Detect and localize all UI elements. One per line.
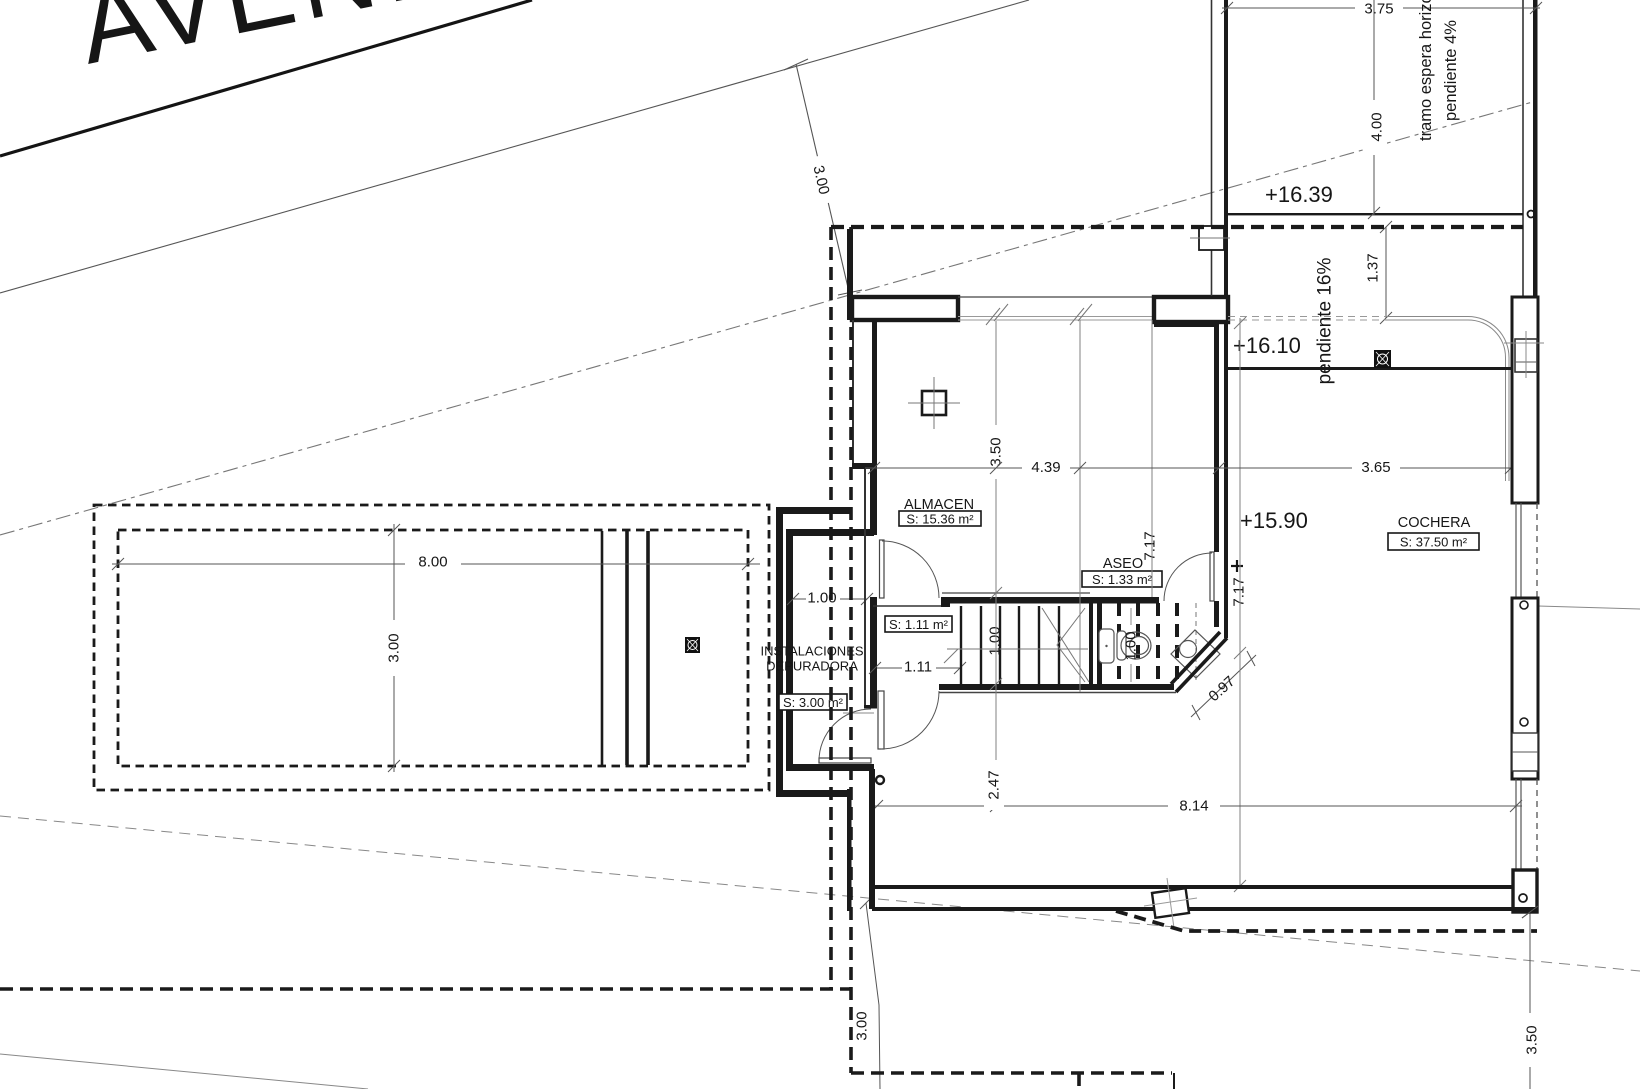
svg-text:S: 3.00 m²: S: 3.00 m² xyxy=(783,695,844,710)
svg-text:S: 1.11 m²: S: 1.11 m² xyxy=(889,617,949,632)
svg-text:7.17: 7.17 xyxy=(1231,577,1248,606)
svg-text:COCHERA: COCHERA xyxy=(1398,515,1471,531)
svg-text:4.39: 4.39 xyxy=(1031,459,1060,476)
svg-text:ASEO: ASEO xyxy=(1103,556,1143,572)
svg-text:1.11: 1.11 xyxy=(904,659,932,676)
svg-text:3.65: 3.65 xyxy=(1361,459,1390,476)
svg-text:DEPURADORA: DEPURADORA xyxy=(766,659,858,674)
svg-text:1.37: 1.37 xyxy=(1365,253,1382,282)
svg-text:pendiente 4%: pendiente 4% xyxy=(1442,20,1460,121)
svg-text:1.00: 1.00 xyxy=(1123,631,1140,660)
svg-text:3.00: 3.00 xyxy=(386,633,403,662)
svg-text:3.75: 3.75 xyxy=(1364,1,1393,18)
svg-text:pendiente 16%: pendiente 16% xyxy=(1315,258,1336,385)
svg-text:3.50: 3.50 xyxy=(1524,1025,1541,1054)
svg-text:2.47: 2.47 xyxy=(986,770,1003,799)
svg-text:INSTALACIONES: INSTALACIONES xyxy=(760,644,863,659)
svg-text:+16.10: +16.10 xyxy=(1233,333,1301,358)
svg-text:1.00: 1.00 xyxy=(987,626,1004,655)
svg-text:+15.90: +15.90 xyxy=(1240,508,1308,533)
svg-text:tramo espera horizontal: tramo espera horizontal xyxy=(1417,0,1435,141)
svg-text:7.17: 7.17 xyxy=(1142,531,1159,560)
svg-text:8.14: 8.14 xyxy=(1179,798,1208,815)
svg-text:S: 37.50 m²: S: 37.50 m² xyxy=(1400,535,1468,550)
svg-text:3.00: 3.00 xyxy=(854,1011,871,1040)
svg-text:4.00: 4.00 xyxy=(1369,112,1386,141)
svg-text:+16.39: +16.39 xyxy=(1265,182,1333,207)
svg-text:S: 1.33 m²: S: 1.33 m² xyxy=(1092,572,1153,587)
svg-text:S: 15.36 m²: S: 15.36 m² xyxy=(906,512,974,527)
svg-text:8.00: 8.00 xyxy=(418,554,447,571)
